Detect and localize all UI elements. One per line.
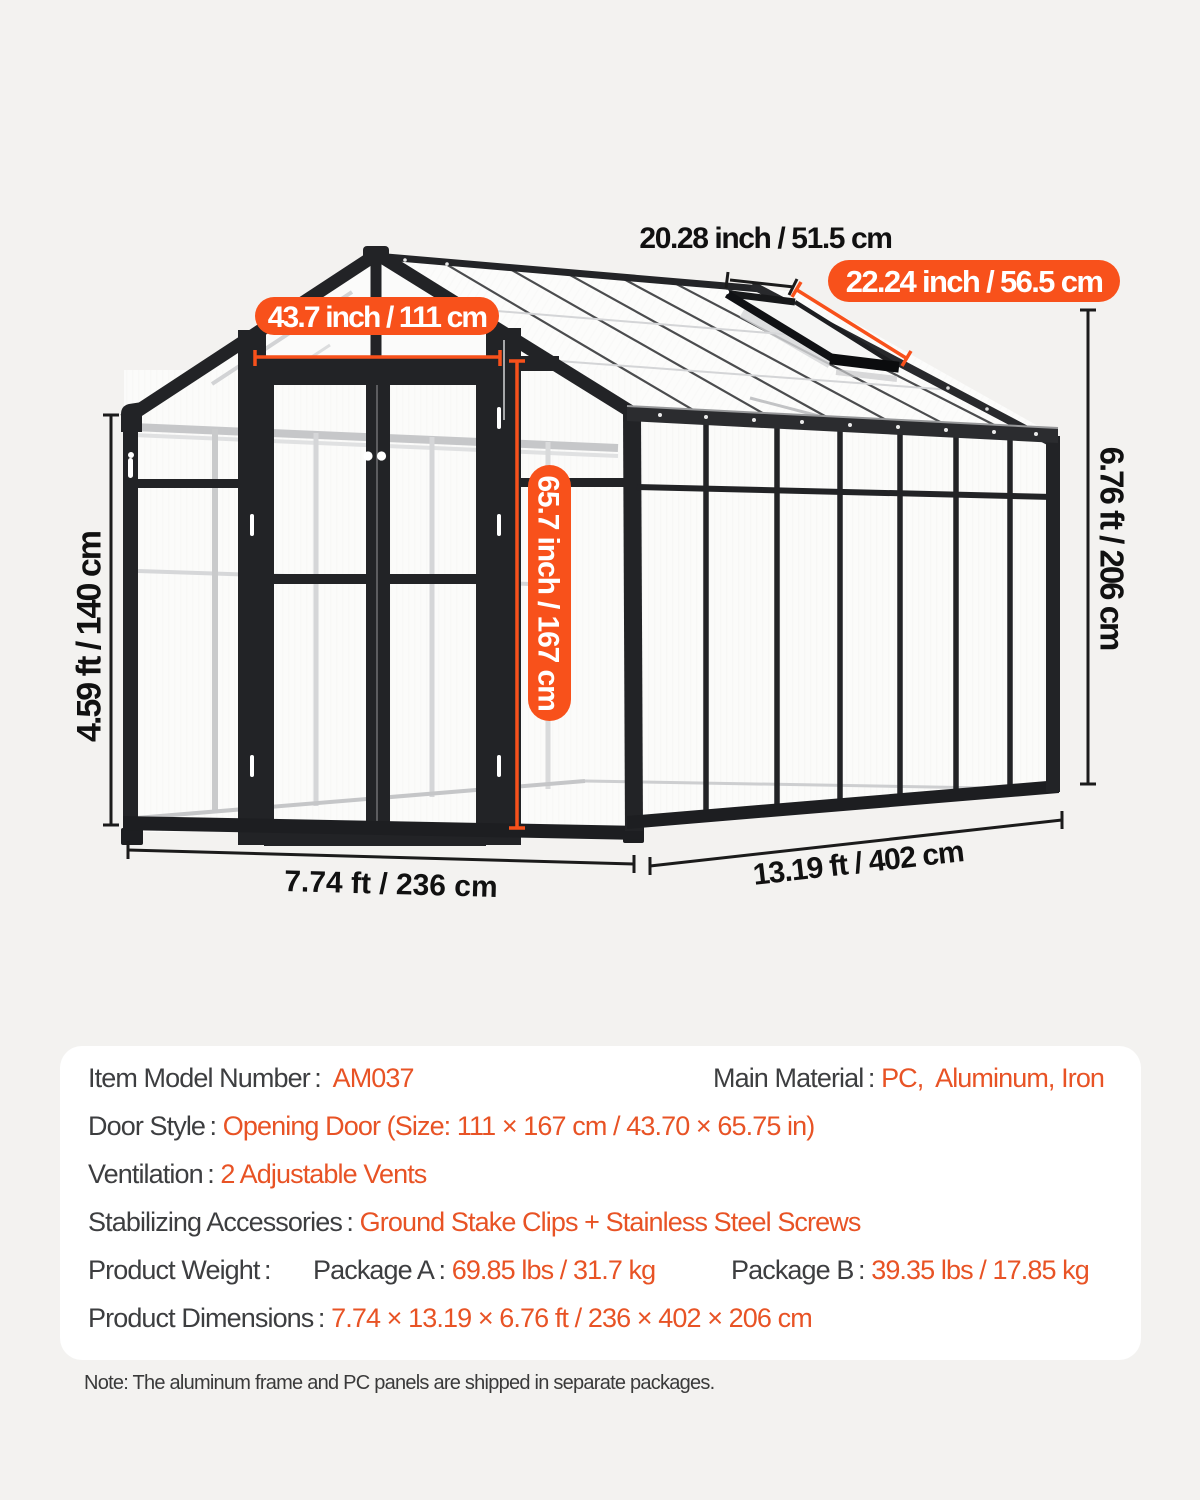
svg-text:4.59 ft / 140 cm: 4.59 ft / 140 cm (71, 531, 109, 742)
svg-text:22.24 inch / 56.5 cm: 22.24 inch / 56.5 cm (846, 264, 1103, 299)
svg-text:6.76 ft / 206 cm: 6.76 ft / 206 cm (1094, 447, 1131, 650)
svg-text:20.28 inch / 51.5 cm: 20.28 inch / 51.5 cm (639, 222, 891, 255)
svg-text:43.7 inch / 111 cm: 43.7 inch / 111 cm (268, 301, 487, 334)
svg-text:65.7 inch / 167 cm: 65.7 inch / 167 cm (532, 475, 565, 710)
svg-text:7.74 ft / 236 cm: 7.74 ft / 236 cm (284, 865, 498, 904)
